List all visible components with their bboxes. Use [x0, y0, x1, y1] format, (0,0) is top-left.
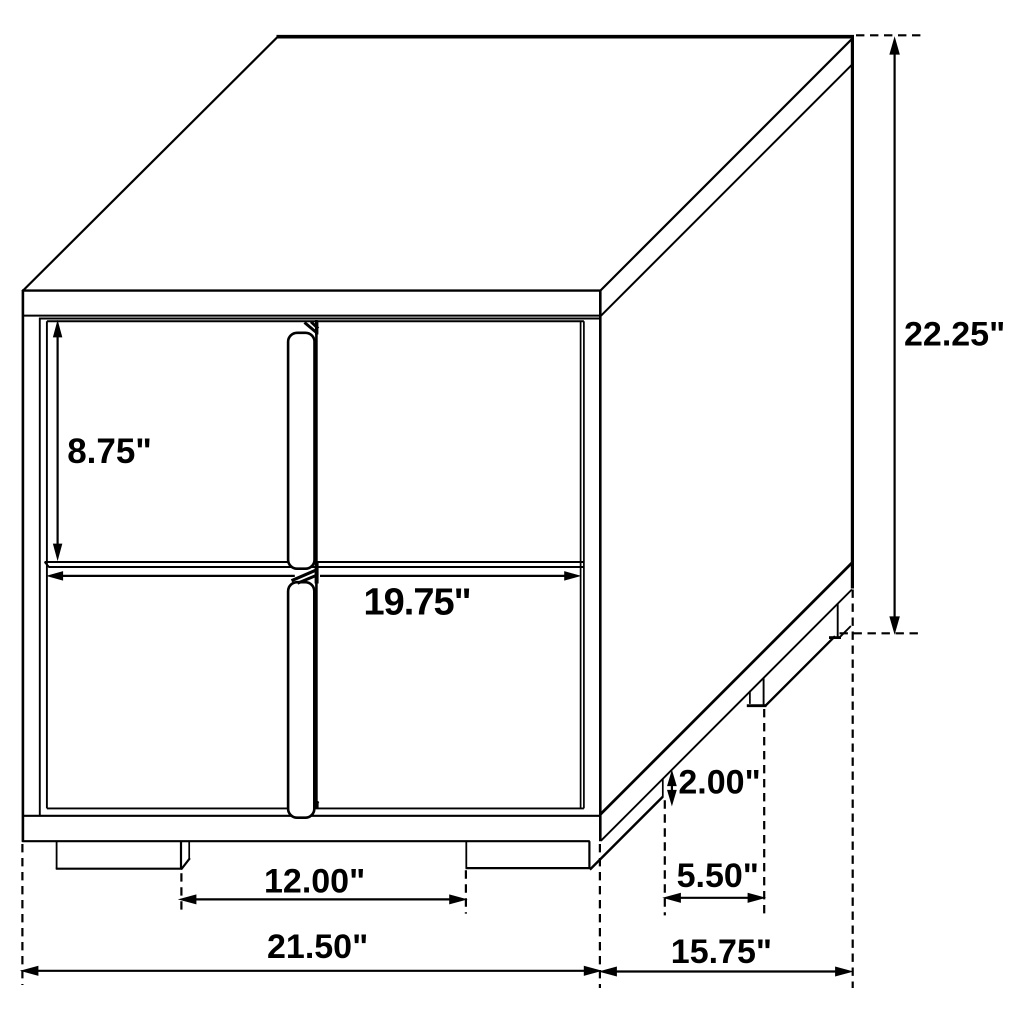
svg-text:19.75": 19.75" [364, 582, 471, 624]
svg-text:22.25": 22.25" [904, 315, 1005, 353]
svg-text:21.50": 21.50" [267, 928, 368, 966]
svg-text:12.00": 12.00" [264, 863, 365, 901]
svg-text:8.75": 8.75" [67, 432, 152, 471]
svg-text:2.00": 2.00" [678, 764, 760, 802]
svg-text:5.50": 5.50" [677, 857, 759, 895]
svg-text:15.75": 15.75" [671, 933, 772, 971]
